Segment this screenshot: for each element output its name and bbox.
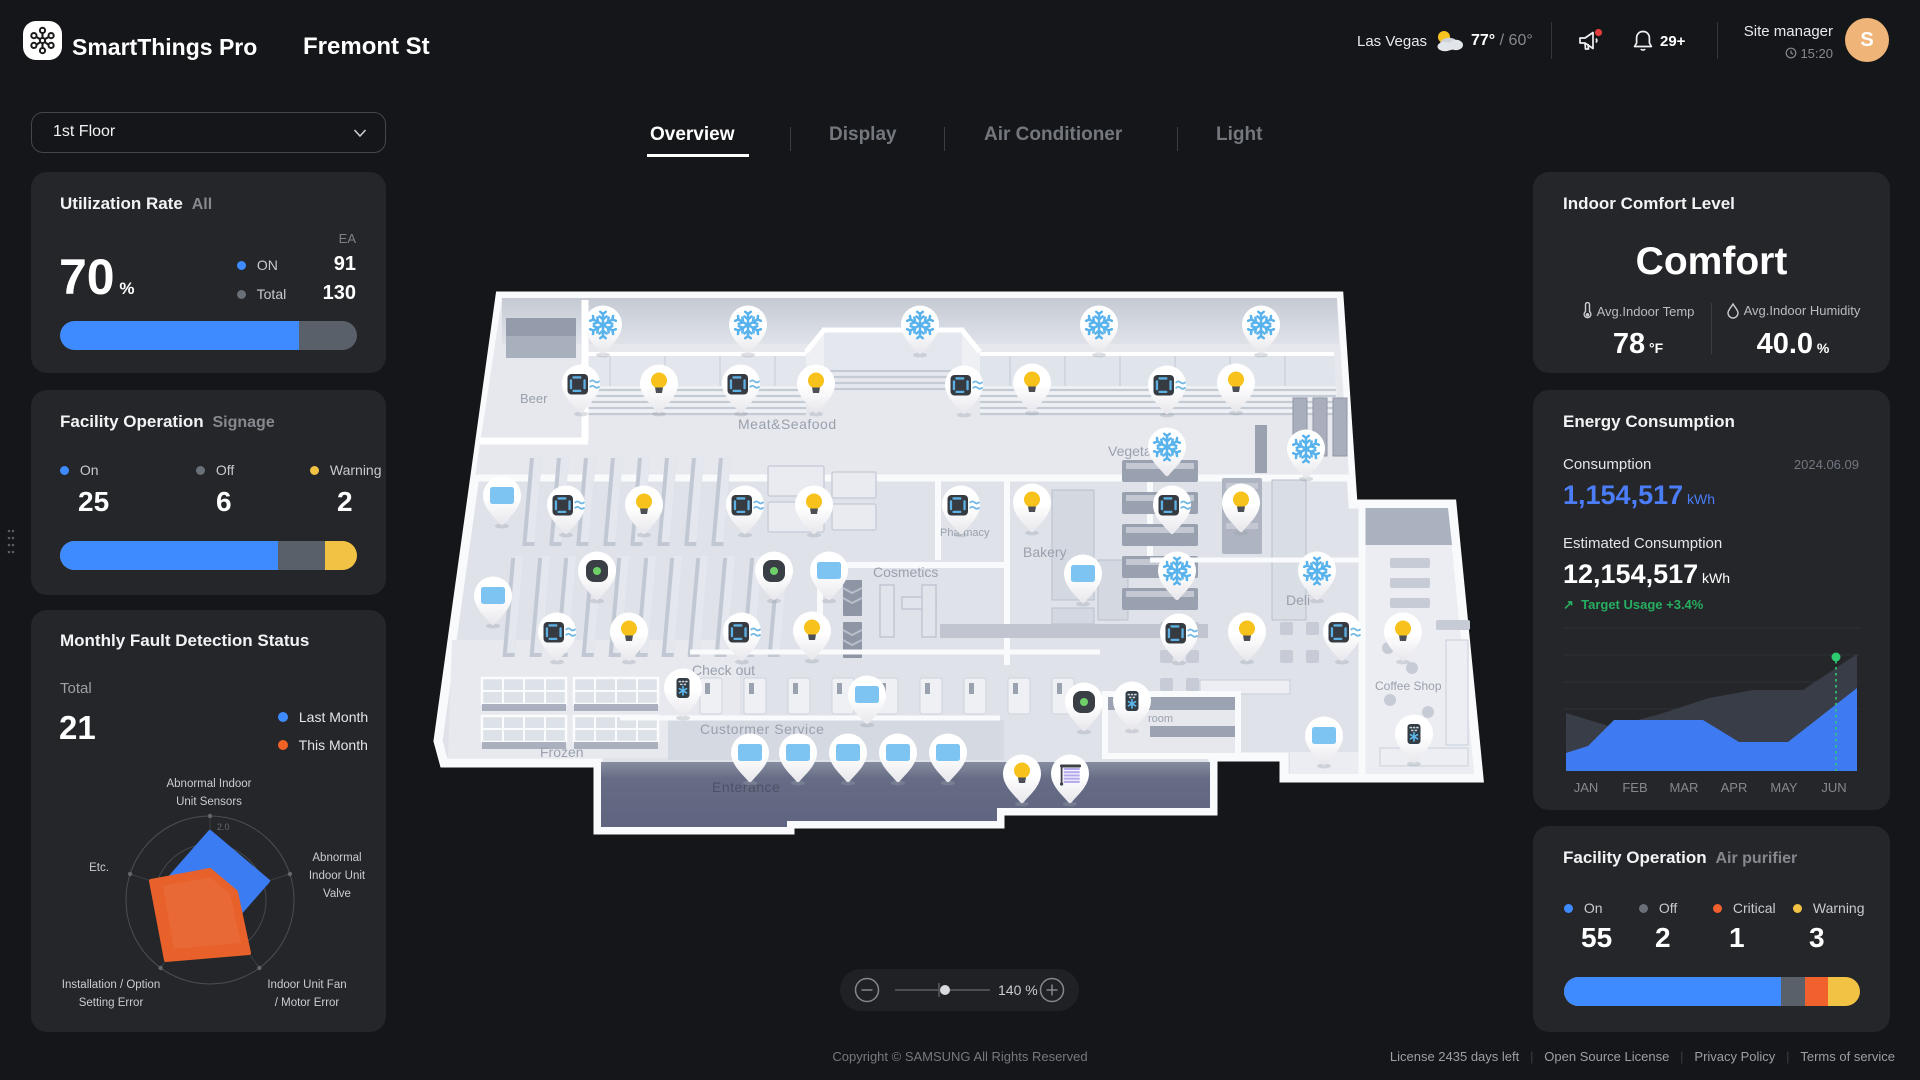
svg-text:Frozen: Frozen xyxy=(540,744,584,760)
svg-text:Coffee Shop: Coffee Shop xyxy=(1375,679,1442,693)
svg-text:Valve: Valve xyxy=(323,888,351,900)
svg-text:Beer: Beer xyxy=(520,391,548,406)
svg-text:Installation / Option: Installation / Option xyxy=(62,979,160,991)
svg-text:FEB: FEB xyxy=(1622,780,1647,795)
svg-text:Setting Error: Setting Error xyxy=(79,997,144,1009)
svg-text:/ Motor Error: / Motor Error xyxy=(275,997,340,1009)
svg-text:APR: APR xyxy=(1721,780,1748,795)
svg-text:Etc.: Etc. xyxy=(89,862,109,874)
svg-text:Deli: Deli xyxy=(1286,592,1310,608)
svg-text:MAR: MAR xyxy=(1670,780,1699,795)
svg-text:Indoor Unit: Indoor Unit xyxy=(309,870,366,882)
svg-text:Cosmetics: Cosmetics xyxy=(873,564,938,580)
svg-text:2.0: 2.0 xyxy=(217,822,230,832)
svg-text:MAY: MAY xyxy=(1770,780,1798,795)
svg-text:Bakery: Bakery xyxy=(1023,544,1067,560)
svg-text:JUN: JUN xyxy=(1821,780,1846,795)
svg-text:Unit Sensors: Unit Sensors xyxy=(176,796,242,808)
svg-text:Meat&Seafood: Meat&Seafood xyxy=(738,416,837,432)
svg-text:Abnormal: Abnormal xyxy=(312,852,361,864)
svg-text:JAN: JAN xyxy=(1574,780,1599,795)
svg-text:room: room xyxy=(1148,713,1173,725)
svg-text:Indoor Unit Fan: Indoor Unit Fan xyxy=(267,979,346,991)
svg-text:Abnormal Indoor: Abnormal Indoor xyxy=(166,778,251,790)
svg-text:Custormer Service: Custormer Service xyxy=(700,721,824,737)
svg-text:Check out: Check out xyxy=(692,662,755,678)
